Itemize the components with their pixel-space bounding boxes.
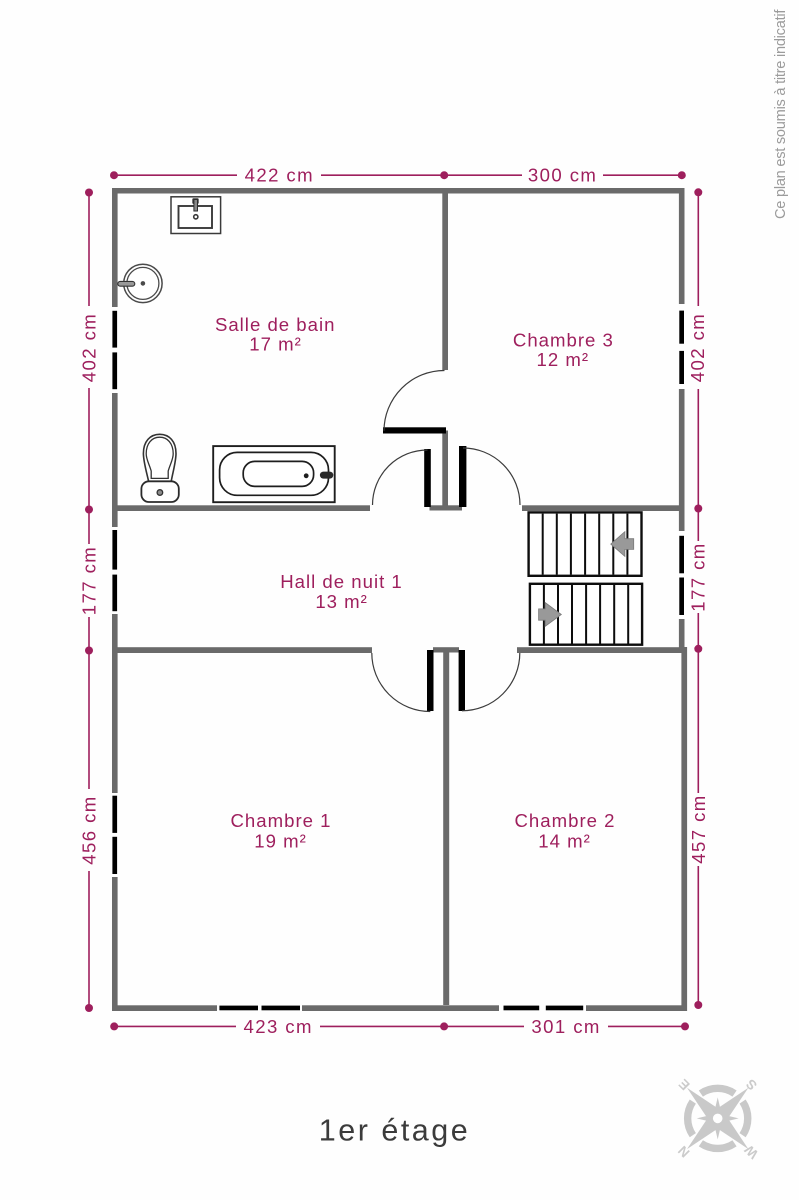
svg-text:Ce plan est soumis à titre ind: Ce plan est soumis à titre indicatif xyxy=(773,9,789,219)
svg-text:422 cm: 422 cm xyxy=(245,164,314,185)
svg-text:457 cm: 457 cm xyxy=(688,794,709,863)
svg-text:177 cm: 177 cm xyxy=(78,546,99,615)
svg-text:300 cm: 300 cm xyxy=(528,164,597,185)
svg-text:1er étage: 1er étage xyxy=(319,1114,470,1148)
svg-text:301 cm: 301 cm xyxy=(531,1016,600,1037)
svg-text:402 cm: 402 cm xyxy=(78,313,99,382)
svg-text:Chambre 3: Chambre 3 xyxy=(513,330,614,351)
svg-text:Hall de nuit 1: Hall de nuit 1 xyxy=(280,571,403,592)
svg-text:13 m²: 13 m² xyxy=(315,591,368,612)
svg-text:Salle de bain: Salle de bain xyxy=(215,314,336,335)
svg-text:Chambre 2: Chambre 2 xyxy=(515,810,616,831)
svg-text:14 m²: 14 m² xyxy=(538,830,591,851)
svg-text:456 cm: 456 cm xyxy=(78,795,99,864)
svg-text:402 cm: 402 cm xyxy=(687,313,708,382)
svg-text:12 m²: 12 m² xyxy=(537,349,590,370)
svg-text:19 m²: 19 m² xyxy=(254,830,307,851)
svg-text:423 cm: 423 cm xyxy=(244,1016,313,1037)
svg-text:17 m²: 17 m² xyxy=(249,333,302,354)
svg-text:177 cm: 177 cm xyxy=(687,542,708,611)
svg-text:Chambre 1: Chambre 1 xyxy=(231,810,332,831)
